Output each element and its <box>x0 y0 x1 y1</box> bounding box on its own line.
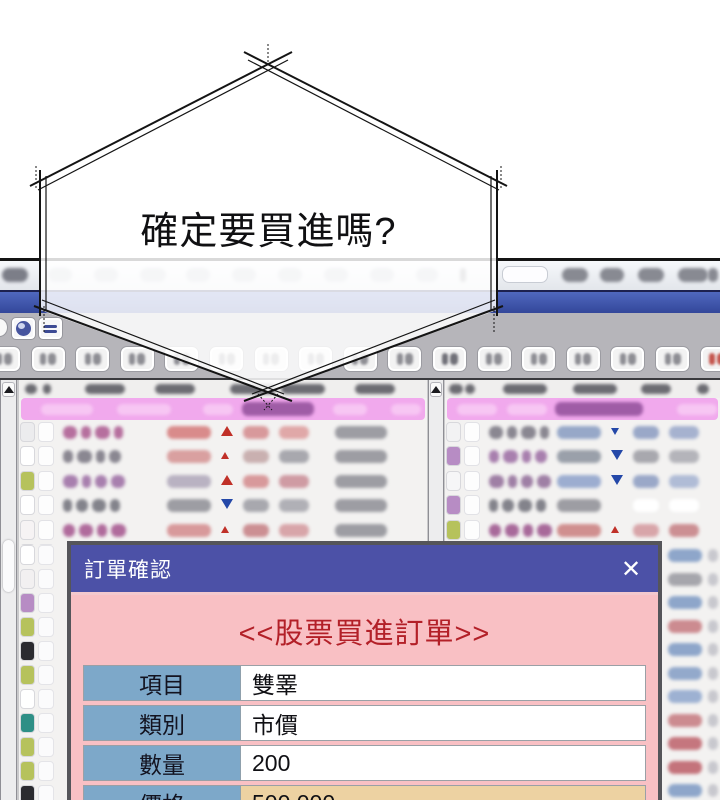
toolbar-button[interactable] <box>254 346 289 372</box>
stock-row[interactable] <box>445 420 720 444</box>
row-marker-cell <box>20 471 35 491</box>
row-marker-cell <box>20 495 35 515</box>
stock-name-blur <box>95 475 107 488</box>
price-blur <box>557 450 601 463</box>
order-field-value: 雙睪 <box>241 666 645 700</box>
price-blur <box>167 475 211 488</box>
price-blur <box>668 714 702 727</box>
stock-row[interactable] <box>445 444 720 468</box>
toolbar-icon-partial[interactable] <box>0 318 8 337</box>
row-marker-cell <box>20 520 35 540</box>
table-header-row <box>445 380 720 398</box>
stock-name-blur <box>503 450 518 463</box>
row-marker-cell <box>20 545 35 565</box>
up-triangle-icon <box>221 452 229 459</box>
dialog-title: 訂單確認 <box>71 554 172 584</box>
dialog-title-bar[interactable]: 訂單確認 ✕ <box>71 545 658 595</box>
row-check-cell <box>464 495 480 515</box>
change-blur <box>669 450 699 463</box>
menu-item-blur[interactable] <box>502 266 548 283</box>
row-check-cell <box>464 520 480 540</box>
order-field-row: 價格500,000 <box>83 785 646 800</box>
toolbar-button[interactable] <box>31 346 66 372</box>
stock-name-blur <box>518 499 532 512</box>
stock-name-blur <box>489 426 503 439</box>
price-blur <box>708 643 718 656</box>
toolbar-button[interactable] <box>164 346 199 372</box>
change-blur <box>279 524 309 537</box>
row-check-cell <box>38 737 54 757</box>
price-blur <box>557 475 601 488</box>
stock-row[interactable] <box>445 493 720 517</box>
price-blur <box>668 667 702 680</box>
order-field-row: 數量200 <box>83 745 646 781</box>
price-blur <box>668 737 702 750</box>
menu-bar <box>0 261 720 290</box>
price-blur <box>668 690 702 703</box>
left-row-markers-strip <box>19 545 67 800</box>
price-blur <box>708 549 718 562</box>
row-check-cell <box>38 495 54 515</box>
down-triangle-icon <box>611 450 623 460</box>
row-marker-cell <box>20 665 35 685</box>
toolbar-button[interactable] <box>432 346 467 372</box>
menu-item-blur[interactable] <box>416 268 438 282</box>
row-marker-cell <box>446 495 461 515</box>
stock-name-blur <box>110 499 120 512</box>
up-triangle-icon <box>221 526 229 533</box>
price-blur <box>167 499 211 512</box>
toolbar-button[interactable] <box>209 346 244 372</box>
toolbar-button[interactable] <box>343 346 378 372</box>
order-field-value: 500,000 <box>241 786 645 800</box>
stock-name-blur <box>63 426 77 439</box>
stock-name-blur <box>96 450 105 463</box>
price-blur <box>708 596 718 609</box>
row-marker-cell <box>20 689 35 709</box>
down-triangle-icon <box>221 499 233 509</box>
toolbar-button[interactable] <box>655 346 690 372</box>
order-field-label: 類別 <box>84 706 241 740</box>
menu-item-blur[interactable] <box>2 268 28 282</box>
change-blur <box>633 426 659 439</box>
up-triangle-icon <box>221 426 233 436</box>
toolbar-button[interactable] <box>298 346 333 372</box>
row-check-cell <box>38 471 54 491</box>
stock-name-blur <box>502 499 514 512</box>
row-check-cell <box>38 617 54 637</box>
menu-item-blur[interactable] <box>678 268 708 282</box>
menu-item-blur[interactable] <box>708 268 718 282</box>
menu-item-blur[interactable] <box>324 268 348 282</box>
toolbar-button[interactable] <box>387 346 422 372</box>
row-check-cell <box>38 520 54 540</box>
price-blur <box>668 549 702 562</box>
order-field-row: 項目雙睪 <box>83 665 646 701</box>
price-blur <box>708 761 718 774</box>
globe-glyph <box>16 321 31 336</box>
highlighted-stock-row[interactable] <box>21 398 425 420</box>
stock-name-blur <box>81 426 91 439</box>
price-blur <box>708 620 718 633</box>
change-blur <box>633 524 659 537</box>
stock-name-blur <box>63 499 72 512</box>
menu-item-blur[interactable] <box>370 268 394 282</box>
toolbar-button[interactable] <box>700 346 720 372</box>
stock-name-blur <box>489 499 498 512</box>
price-blur <box>167 426 211 439</box>
up-triangle-icon <box>221 475 233 485</box>
up-triangle-icon <box>611 526 619 533</box>
row-marker-cell <box>20 422 35 442</box>
price-blur <box>557 426 601 439</box>
change-blur <box>633 499 659 512</box>
stock-name-blur <box>114 426 123 439</box>
stock-name-blur <box>505 524 519 537</box>
stock-row[interactable] <box>19 469 427 493</box>
stock-row[interactable] <box>19 420 427 444</box>
menu-item-blur[interactable] <box>232 268 256 282</box>
order-field-label: 價格 <box>84 786 241 800</box>
order-field-label: 數量 <box>84 746 241 780</box>
menu-item-blur[interactable] <box>48 268 72 282</box>
left-scrollbar[interactable] <box>0 380 17 800</box>
price-blur <box>708 784 718 797</box>
toolbar-button[interactable] <box>75 346 110 372</box>
stock-name-blur <box>489 450 499 463</box>
right-quote-strip <box>666 545 720 800</box>
stock-row[interactable] <box>19 493 427 517</box>
row-check-cell <box>464 471 480 491</box>
order-field-value: 市價 <box>241 706 645 740</box>
volume-blur <box>335 450 387 463</box>
change-blur <box>633 475 659 488</box>
stock-name-blur <box>77 450 92 463</box>
stock-name-blur <box>92 499 106 512</box>
toolbar-button[interactable] <box>120 346 155 372</box>
row-check-cell <box>38 641 54 661</box>
volume-blur <box>335 475 387 488</box>
row-marker-cell <box>446 520 461 540</box>
stock-name-blur <box>489 475 504 488</box>
price-blur <box>668 573 702 586</box>
close-icon[interactable]: ✕ <box>618 557 644 583</box>
change-blur <box>279 499 309 512</box>
order-confirm-dialog: 訂單確認 ✕ <<股票買進訂單>> 項目雙睪類別市價數量200價格500,000 <box>67 541 662 800</box>
row-check-cell <box>38 422 54 442</box>
toolbar-button[interactable] <box>610 346 645 372</box>
menu-item-blur[interactable] <box>140 268 166 282</box>
stock-name-blur <box>508 475 517 488</box>
order-fields-table: 項目雙睪類別市價數量200價格500,000 <box>83 665 646 800</box>
change-blur <box>669 524 699 537</box>
toolbar-button[interactable] <box>521 346 556 372</box>
row-marker-cell <box>446 446 461 466</box>
change-blur <box>243 524 269 537</box>
change-blur <box>243 475 269 488</box>
stock-name-blur <box>63 475 78 488</box>
price-blur <box>668 620 702 633</box>
stock-name-blur <box>76 499 88 512</box>
price-blur <box>167 524 211 537</box>
row-check-cell <box>38 446 54 466</box>
toolbar <box>0 313 720 380</box>
change-blur <box>243 426 269 439</box>
price-blur <box>668 784 702 797</box>
volume-blur <box>335 426 387 439</box>
price-blur <box>668 761 702 774</box>
row-check-cell <box>38 569 54 589</box>
window-title-bar <box>0 292 720 313</box>
stock-name-blur <box>521 475 533 488</box>
stock-name-blur <box>97 524 107 537</box>
change-blur <box>243 499 269 512</box>
stock-name-blur <box>535 450 547 463</box>
row-marker-cell <box>20 641 35 661</box>
menu-item-blur[interactable] <box>94 268 118 282</box>
highlighted-stock-row[interactable] <box>447 398 718 420</box>
price-blur <box>708 714 718 727</box>
stock-name-blur <box>507 426 517 439</box>
stock-row[interactable] <box>445 518 720 542</box>
stock-row[interactable] <box>19 444 427 468</box>
row-check-cell <box>38 713 54 733</box>
toolbar-button[interactable] <box>0 346 21 372</box>
change-blur <box>669 426 699 439</box>
stock-name-blur <box>109 450 121 463</box>
order-field-value: 200 <box>241 746 645 780</box>
stock-row[interactable] <box>445 469 720 493</box>
row-check-cell <box>38 665 54 685</box>
row-marker-cell <box>20 761 35 781</box>
stock-name-blur <box>489 524 501 537</box>
stock-name-blur <box>537 475 551 488</box>
menu-icon[interactable] <box>38 317 63 340</box>
change-blur <box>279 475 309 488</box>
stock-name-blur <box>537 524 552 537</box>
price-blur <box>557 499 601 512</box>
toolbar-button[interactable] <box>566 346 601 372</box>
comic-panel: 訂單確認 ✕ <<股票買進訂單>> 項目雙睪類別市價數量200價格500,000 <box>0 0 720 800</box>
stock-name-blur <box>522 450 531 463</box>
order-heading: <<股票買進訂單>> <box>71 610 658 652</box>
volume-blur <box>335 524 387 537</box>
row-marker-cell <box>20 713 35 733</box>
stock-name-blur <box>521 426 536 439</box>
change-blur <box>633 450 659 463</box>
menu-item-blur[interactable] <box>562 268 588 282</box>
scrollbar-thumb[interactable] <box>3 540 14 592</box>
row-marker-cell <box>20 737 35 757</box>
row-marker-cell <box>20 617 35 637</box>
price-blur <box>557 524 601 537</box>
change-blur <box>243 450 269 463</box>
stock-name-blur <box>540 426 549 439</box>
volume-blur <box>335 499 387 512</box>
row-check-cell <box>38 761 54 781</box>
stock-name-blur <box>111 475 125 488</box>
order-field-row: 類別市價 <box>83 705 646 741</box>
menu-item-blur[interactable] <box>460 268 466 282</box>
globe-icon[interactable] <box>11 317 36 340</box>
row-marker-cell <box>446 422 461 442</box>
change-blur <box>279 450 309 463</box>
table-header-row <box>19 380 427 398</box>
row-marker-cell <box>20 785 35 800</box>
menu-item-blur[interactable] <box>278 268 302 282</box>
change-blur <box>279 426 309 439</box>
scroll-up-arrow-icon[interactable] <box>430 382 442 397</box>
order-field-label: 項目 <box>84 666 241 700</box>
row-check-cell <box>38 593 54 613</box>
menu-bars-glyph <box>44 323 57 335</box>
stock-name-blur <box>82 475 91 488</box>
menu-item-blur[interactable] <box>600 268 624 282</box>
row-marker-cell <box>20 593 35 613</box>
stock-name-blur <box>79 524 93 537</box>
row-check-cell <box>38 785 54 800</box>
price-blur <box>708 690 718 703</box>
down-triangle-icon <box>611 428 619 435</box>
row-marker-cell <box>20 446 35 466</box>
stock-name-blur <box>63 450 73 463</box>
price-blur <box>708 667 718 680</box>
price-blur <box>668 596 702 609</box>
speech-bubble-text: 確定要買進嗎? <box>40 200 497 255</box>
stock-name-blur <box>536 499 546 512</box>
stock-name-blur <box>95 426 110 439</box>
change-blur <box>669 475 699 488</box>
down-triangle-icon <box>611 475 623 485</box>
price-blur <box>668 643 702 656</box>
stock-name-blur <box>63 524 75 537</box>
menu-item-blur[interactable] <box>638 268 664 282</box>
scroll-up-arrow-icon[interactable] <box>2 382 15 397</box>
row-marker-cell <box>446 471 461 491</box>
row-marker-cell <box>20 569 35 589</box>
row-check-cell <box>38 545 54 565</box>
price-blur <box>708 573 718 586</box>
toolbar-button[interactable] <box>477 346 512 372</box>
stock-row[interactable] <box>19 518 427 542</box>
price-blur <box>708 737 718 750</box>
stock-name-blur <box>111 524 126 537</box>
row-check-cell <box>464 422 480 442</box>
stock-name-blur <box>523 524 533 537</box>
menu-item-blur[interactable] <box>186 268 210 282</box>
price-blur <box>167 450 211 463</box>
row-check-cell <box>464 446 480 466</box>
row-check-cell <box>38 689 54 709</box>
change-blur <box>669 499 699 512</box>
